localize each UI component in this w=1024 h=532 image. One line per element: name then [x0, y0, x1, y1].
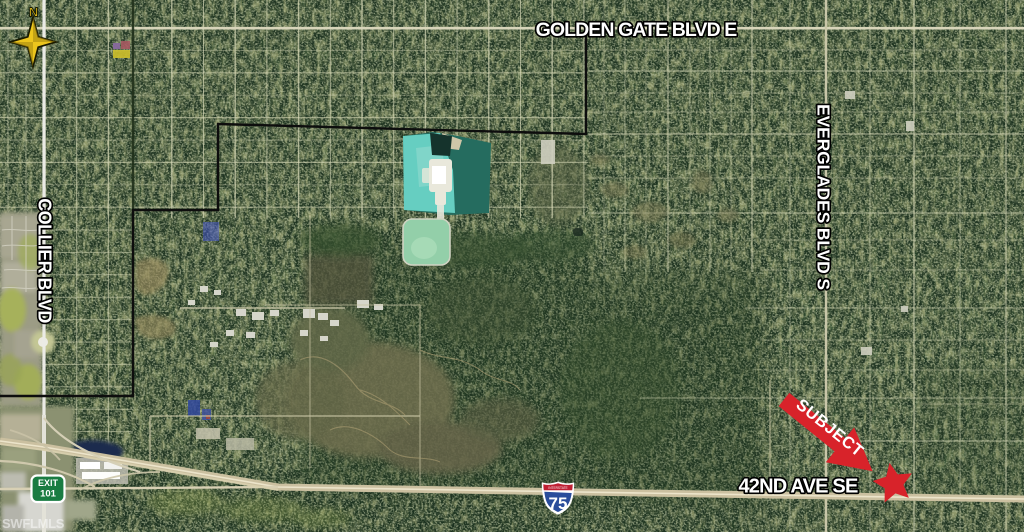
svg-text:N: N	[29, 5, 38, 20]
svg-text:42ND AVE SE: 42ND AVE SE	[738, 476, 857, 498]
svg-text:GOLDEN GATE BLVD E: GOLDEN GATE BLVD E	[536, 19, 738, 41]
svg-text:SWFLMLS: SWFLMLS	[2, 516, 65, 531]
svg-text:EXIT: EXIT	[38, 478, 59, 488]
svg-text:COLLIER BLVD: COLLIER BLVD	[35, 198, 55, 323]
svg-text:75: 75	[549, 494, 568, 513]
svg-text:101: 101	[40, 489, 57, 500]
svg-text:EVERGLADES BLVD S: EVERGLADES BLVD S	[814, 104, 834, 290]
svg-text:INTERSTATE: INTERSTATE	[548, 486, 567, 490]
